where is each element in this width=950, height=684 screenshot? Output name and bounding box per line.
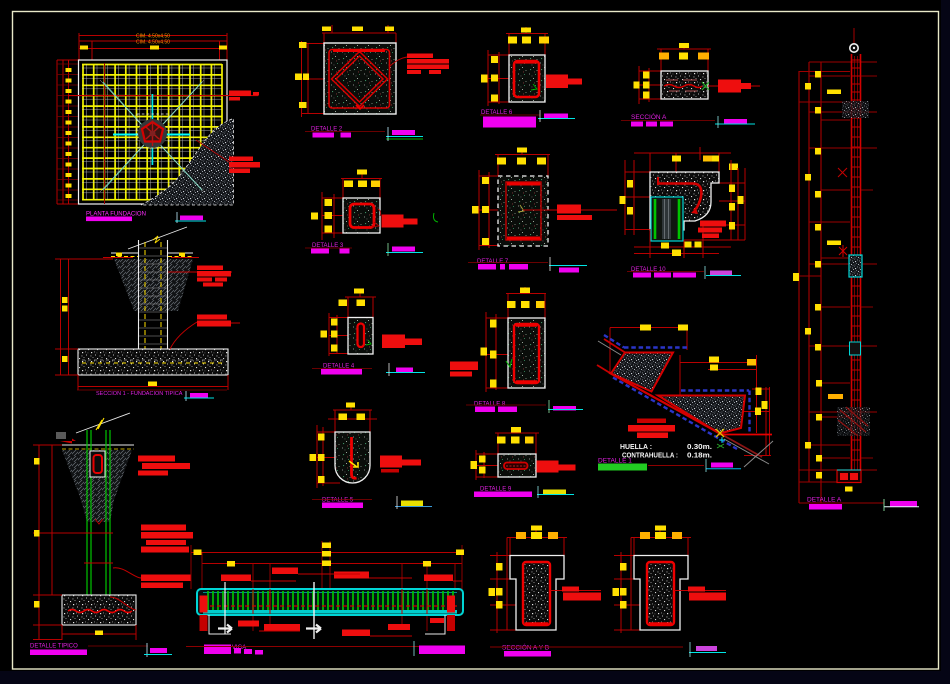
svg-text:SECCIÓN A: SECCIÓN A (631, 112, 667, 121)
svg-text:SECCION 1 - FUNDACION TIPICA: SECCION 1 - FUNDACION TIPICA (96, 391, 183, 397)
svg-text:CIM. 4.50x4.50: CIM. 4.50x4.50 (136, 40, 170, 46)
svg-text:DETALLE TIPICO: DETALLE TIPICO (30, 644, 78, 650)
svg-text:0.18m.: 0.18m. (687, 451, 712, 460)
svg-text:DETALLE 1: DETALLE 1 (598, 458, 632, 465)
svg-text:DETALLE 10: DETALLE 10 (631, 267, 666, 273)
svg-text:DETALLE A: DETALLE A (807, 497, 842, 504)
